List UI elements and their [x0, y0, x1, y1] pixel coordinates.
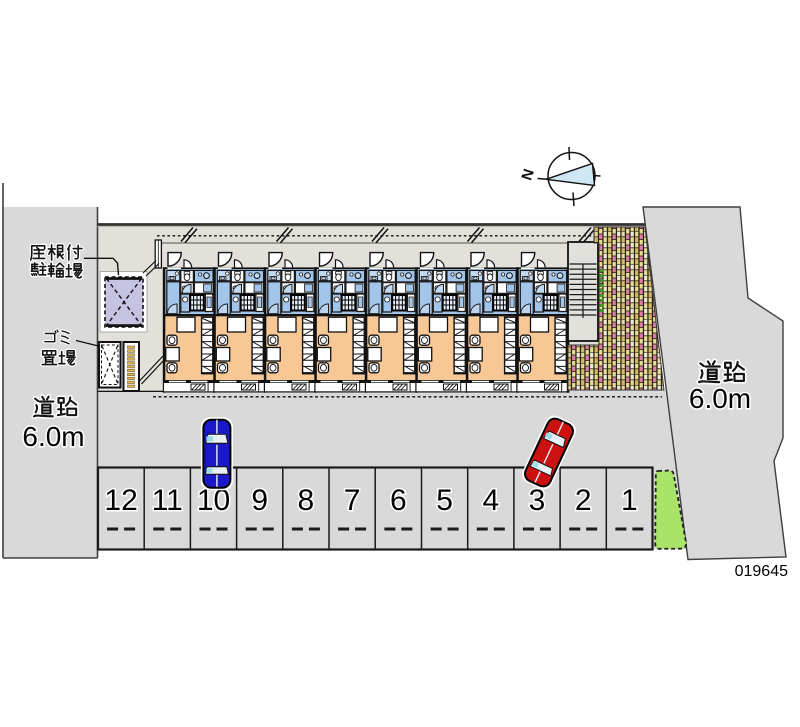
svg-text:11: 11: [152, 484, 183, 517]
svg-text:5: 5: [436, 484, 453, 517]
svg-text:6.0m: 6.0m: [22, 421, 84, 452]
svg-text:4: 4: [482, 484, 499, 517]
svg-text:N: N: [518, 167, 538, 183]
svg-text:9: 9: [251, 484, 268, 517]
svg-text:7: 7: [344, 484, 361, 517]
svg-text:8: 8: [298, 484, 315, 517]
svg-text:6.0m: 6.0m: [689, 383, 751, 414]
svg-text:2: 2: [575, 484, 592, 517]
svg-text:12: 12: [104, 484, 137, 517]
svg-text:019645: 019645: [735, 563, 788, 580]
svg-text:6: 6: [390, 484, 407, 517]
svg-text:1: 1: [621, 484, 638, 517]
